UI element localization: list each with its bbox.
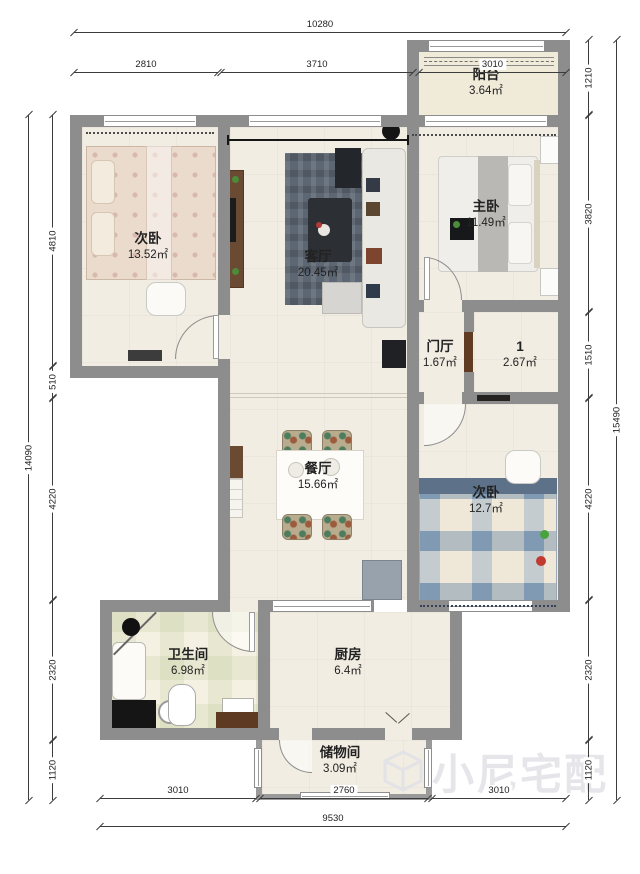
room-area: 6.4㎡ xyxy=(303,664,393,679)
dim-top-total: 10280 xyxy=(74,32,566,33)
vanity-counter xyxy=(216,712,260,728)
dim-left-seg1: 4810 xyxy=(52,115,53,366)
room-area: 6.98㎡ xyxy=(143,664,233,679)
room-area: 13.52㎡ xyxy=(103,248,193,263)
dim-right-seg5: 2320 xyxy=(588,600,589,740)
dim-left-seg5: 1120 xyxy=(52,740,53,800)
cabinet-dark xyxy=(382,340,406,368)
wall-bedroom1-bottom xyxy=(70,366,230,378)
dim-right-seg2: 3820 xyxy=(588,115,589,312)
curtain-master xyxy=(412,134,556,136)
dim-value: 14090 xyxy=(24,441,35,473)
window-kitchen-pass xyxy=(272,600,372,612)
room-name: 次卧 xyxy=(103,230,193,248)
wall-bottom-a xyxy=(100,728,279,740)
door-gap xyxy=(424,392,462,404)
room-label-bedroom2: 次卧 12.7㎡ xyxy=(441,484,531,516)
room-name: 餐厅 xyxy=(273,460,363,478)
curtain-bedroom2 xyxy=(420,605,556,607)
room-label-kitchen: 厨房 6.4㎡ xyxy=(303,646,393,678)
room-label-master: 主卧 11.49㎡ xyxy=(441,198,531,230)
door-gap xyxy=(385,728,412,740)
wall-bath-kitchen xyxy=(258,600,270,740)
window-storage-right xyxy=(424,748,432,788)
cushion xyxy=(366,178,380,192)
window-storage-left xyxy=(254,748,262,788)
door-leaf xyxy=(249,612,255,652)
dim-right-total: 15490 xyxy=(616,40,617,800)
sideboard-white xyxy=(228,478,243,518)
wall-right xyxy=(558,40,570,612)
door-gap xyxy=(424,300,462,312)
wall-balcony-left xyxy=(407,40,419,127)
window-master-slider xyxy=(424,115,548,127)
armchair xyxy=(505,450,541,484)
room-label-room1: 1 2.67㎡ xyxy=(485,338,555,370)
room-area: 15.66㎡ xyxy=(273,478,363,493)
toilet xyxy=(168,684,196,726)
dim-value: 1210 xyxy=(584,64,595,91)
room-label-balcony: 阳台 3.64㎡ xyxy=(441,66,531,98)
nightstand xyxy=(540,268,560,296)
tv xyxy=(229,198,236,242)
dim-top-seg3: 3010 xyxy=(419,72,566,73)
room-label-bedroom1: 次卧 13.52㎡ xyxy=(103,230,193,262)
room-area: 11.49㎡ xyxy=(441,216,531,231)
floor-transition-line xyxy=(230,393,407,398)
wall-kitchen-right xyxy=(450,600,462,740)
dim-value: 2760 xyxy=(330,785,357,796)
bowl-icon xyxy=(316,222,322,228)
dim-top-seg1: 2810 xyxy=(74,72,218,73)
room-area: 3.64㎡ xyxy=(441,84,531,99)
door-gap xyxy=(230,600,258,612)
washing-machine xyxy=(112,700,156,728)
curtain-rod-living xyxy=(228,139,408,141)
dim-value: 3010 xyxy=(164,785,191,796)
wall-bottom-c xyxy=(412,728,462,740)
nightstand xyxy=(540,136,560,164)
dim-value: 3820 xyxy=(584,200,595,227)
armchair xyxy=(146,282,186,316)
dim-top-seg2: 3710 xyxy=(221,72,413,73)
door-leaf xyxy=(424,257,430,300)
room-area: 1.67㎡ xyxy=(405,356,475,371)
side-table xyxy=(322,282,362,314)
dim-value: 1510 xyxy=(584,341,595,368)
room-area: 12.7㎡ xyxy=(441,502,531,517)
dim-value: 1120 xyxy=(584,757,595,783)
dim-value: 10280 xyxy=(304,19,336,30)
room-label-storage: 储物间 3.09㎡ xyxy=(295,744,385,776)
room-name: 客厅 xyxy=(273,248,363,266)
room-label-bathroom: 卫生间 6.98㎡ xyxy=(143,646,233,678)
room-label-living: 客厅 20.45㎡ xyxy=(273,248,363,280)
room-name: 主卧 xyxy=(441,198,531,216)
dim-value: 4220 xyxy=(584,485,595,512)
dim-value: 2320 xyxy=(48,656,59,683)
radiator xyxy=(128,350,162,361)
dim-bottom-seg3: 3010 xyxy=(432,798,566,799)
entry-door xyxy=(477,395,510,401)
room-name: 门厅 xyxy=(405,338,475,356)
curtain-rod-end xyxy=(227,135,229,145)
door-gap xyxy=(279,728,312,740)
wall-left xyxy=(70,115,82,378)
dim-left-seg4: 2320 xyxy=(52,600,53,740)
drying-rack xyxy=(424,57,554,58)
cushion xyxy=(366,284,380,298)
fridge xyxy=(362,560,402,600)
dim-bottom-total: 9530 xyxy=(100,826,566,827)
room-label-dining: 餐厅 15.66㎡ xyxy=(273,460,363,492)
room-area: 3.09㎡ xyxy=(295,762,385,777)
dim-value: 9530 xyxy=(319,813,346,824)
dim-right-seg6: 1120 xyxy=(588,740,589,800)
dim-right-seg3: 1510 xyxy=(588,312,589,398)
dim-value: 510 xyxy=(48,371,59,393)
dim-left-seg3: 4220 xyxy=(52,398,53,600)
wall-dining-bedroom2 xyxy=(407,392,419,612)
curtain-bedroom1 xyxy=(86,132,214,134)
headboard xyxy=(534,160,540,268)
dim-value: 15490 xyxy=(612,404,623,436)
shower-head xyxy=(122,618,140,636)
dim-left-total: 14090 xyxy=(28,115,29,800)
window-bedroom1 xyxy=(103,115,197,127)
dim-value: 2320 xyxy=(584,656,595,683)
window-living xyxy=(248,115,382,127)
door-gap xyxy=(218,315,230,359)
dim-value: 3010 xyxy=(485,785,512,796)
room-name: 卫生间 xyxy=(143,646,233,664)
watermark-text: 小尼宅配 xyxy=(432,741,608,802)
sideboard-wood xyxy=(228,446,243,478)
plant-icon xyxy=(232,176,239,183)
dining-chair xyxy=(282,514,312,540)
floor-plan-canvas: 次卧 13.52㎡ 客厅 20.45㎡ 主卧 11.49㎡ 阳台 3.64㎡ 门… xyxy=(0,0,640,874)
dim-bottom-seg1: 3010 xyxy=(100,798,256,799)
cushion xyxy=(366,248,382,264)
wall-bathroom-top xyxy=(100,600,230,612)
dim-right-seg1: 1210 xyxy=(588,40,589,115)
dim-value: 1120 xyxy=(48,757,59,783)
dim-bottom-seg2: 2760 xyxy=(260,798,428,799)
wall-bathroom-left xyxy=(100,600,112,740)
dim-value: 4220 xyxy=(48,485,59,512)
dim-value: 3010 xyxy=(479,59,506,70)
room-area: 20.45㎡ xyxy=(273,266,363,281)
wall-foyer-stub xyxy=(464,312,474,332)
dim-left-seg2: 510 xyxy=(52,366,53,398)
window-balcony xyxy=(428,40,545,52)
pillow xyxy=(91,160,115,204)
room-name: 次卧 xyxy=(441,484,531,502)
slippers-icon xyxy=(536,556,546,566)
dim-value: 3710 xyxy=(303,59,330,70)
room-name: 储物间 xyxy=(295,744,385,762)
room-label-foyer: 门厅 1.67㎡ xyxy=(405,338,475,370)
room-name: 1 xyxy=(485,338,555,356)
wall-center-vertical xyxy=(218,115,230,612)
dim-value: 2810 xyxy=(132,59,159,70)
media-shelf xyxy=(335,148,361,188)
plant-icon xyxy=(540,530,549,539)
room-name: 厨房 xyxy=(303,646,393,664)
dining-chair xyxy=(322,514,352,540)
wall-bottom-b xyxy=(312,728,385,740)
door-leaf xyxy=(213,315,219,359)
wall-foyer-stub xyxy=(464,372,474,392)
room-area: 2.67㎡ xyxy=(485,356,555,371)
sofa xyxy=(362,148,406,328)
plant-icon xyxy=(232,268,239,275)
dim-right-seg4: 4220 xyxy=(588,398,589,600)
cushion xyxy=(366,202,380,216)
curtain-rod-end xyxy=(407,135,409,145)
dim-value: 4810 xyxy=(48,227,59,254)
